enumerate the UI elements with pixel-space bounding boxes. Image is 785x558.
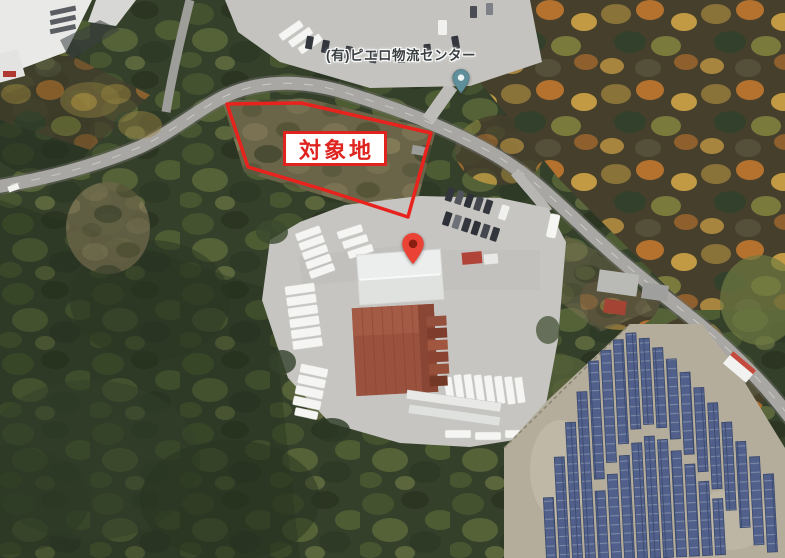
red-roof-warehouse [352, 304, 438, 396]
business-pin-icon[interactable] [452, 68, 470, 95]
satellite-map[interactable]: (有)ピエロ物流センター 対象地 [0, 0, 785, 558]
satellite-imagery [0, 0, 785, 558]
dropped-pin-icon[interactable] [401, 232, 425, 266]
business-name-label[interactable]: (有)ピエロ物流センター [326, 44, 476, 64]
target-site-label: 対象地 [283, 131, 387, 166]
